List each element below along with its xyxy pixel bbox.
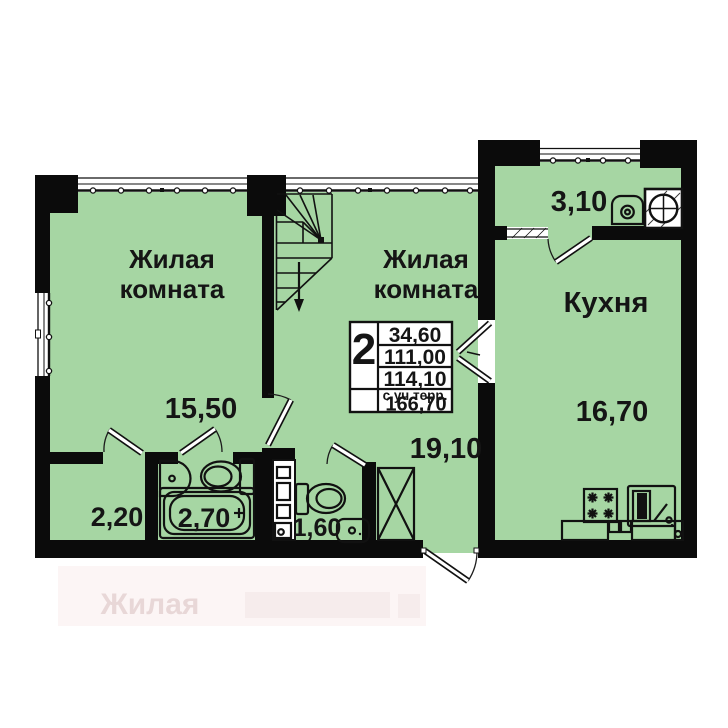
watermark-blob [245, 592, 390, 618]
entry-gap-floor [423, 540, 478, 553]
living1-label-line2: комната [120, 274, 225, 304]
wall-bottom-right [478, 540, 697, 558]
window-left-wall [35, 293, 52, 376]
area-with-terrace-value: 166,70 [385, 394, 446, 416]
wall-right [681, 140, 697, 558]
watermark-text: Жилая [100, 588, 200, 621]
living1-area: 15,50 [165, 393, 238, 425]
living2-label-line2: комната [374, 274, 479, 304]
wc-area: 1,60 [293, 514, 342, 542]
wall-terrace-pillar-left [478, 140, 540, 166]
bathroom-area: 2,70 [178, 503, 231, 533]
wall-kitchen-left-upper [478, 166, 495, 320]
wall-bath-right [255, 452, 273, 540]
area-living-value: 34,60 [389, 324, 442, 347]
wall-terrace-kitchen-a [495, 226, 507, 240]
kitchen-label: Кухня [564, 287, 649, 319]
kitchen-area: 16,70 [576, 396, 649, 428]
window-terrace-top [540, 149, 640, 164]
wall-pillar-top-mid [247, 175, 286, 216]
wall-wc-top-stub [273, 448, 295, 460]
watermark: Жилая [58, 566, 426, 626]
kitchen-floor [495, 226, 681, 540]
wall-hall-top-a [48, 452, 103, 464]
wall-left-lower [35, 376, 50, 558]
info-table: 2 34,60 111,00 114,10 с уч.терр. 166,70 [350, 322, 452, 416]
wall-between-living-rooms [262, 216, 274, 398]
hallway-area: 2,20 [91, 502, 144, 532]
living1-label-line1: Жилая [128, 244, 215, 274]
wall-bottom-left [35, 540, 423, 558]
window-top-left [78, 178, 247, 193]
water-heater-icon [645, 189, 682, 228]
floor-plan: Жилая [0, 0, 728, 728]
living2-area: 19,10 [410, 433, 483, 465]
area-row2-value: 111,00 [384, 346, 446, 369]
watermark-blob [398, 594, 420, 618]
living2-label-line1: Жилая [382, 244, 469, 274]
window-top-mid [286, 178, 478, 193]
floor-plan-page: Жилая [0, 0, 728, 728]
wall-terrace-pillar-right [640, 140, 685, 168]
rooms-count: 2 [352, 325, 376, 374]
window-terrace-kitchen [507, 227, 548, 239]
terrace-area: 3,10 [551, 186, 607, 218]
wall-left-upper [35, 205, 50, 293]
wall-hall-bath-divider [145, 452, 158, 540]
